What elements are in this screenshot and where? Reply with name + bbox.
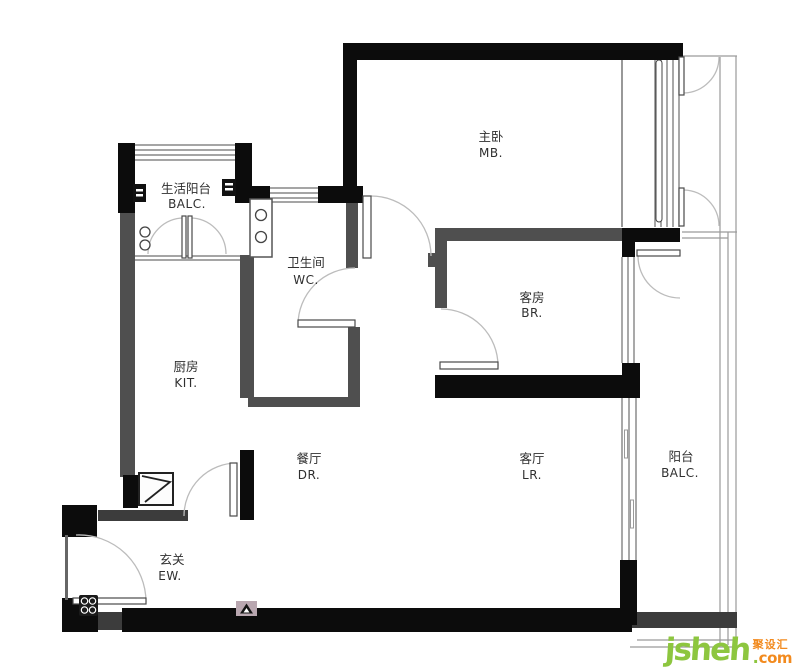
room-label-dining-cn: 餐厅 — [296, 451, 321, 466]
watermark-com: com — [759, 651, 792, 666]
fridge-icon — [139, 473, 173, 505]
room-label-entry-en: EW. — [158, 569, 181, 583]
window-layer — [135, 57, 679, 560]
room-label-kitchen-en: KIT. — [174, 376, 197, 390]
floor-plan: 生活阳台 BALC. 主卧 MB. 卫生间 WC. 客房 BR. 厨房 KIT.… — [0, 0, 800, 667]
room-label-living-cn: 客厅 — [519, 451, 544, 466]
black-wall-layer — [62, 43, 683, 632]
room-label-guest-bedroom-en: BR. — [521, 306, 542, 320]
balcony-taps-icon — [140, 227, 150, 250]
window-pane — [656, 60, 662, 222]
mb-door-leaf — [363, 196, 371, 258]
kitchen-door-leaf — [230, 463, 237, 516]
room-label-bathroom-en: WC. — [293, 273, 319, 287]
door-closer-icon — [79, 595, 98, 616]
room-label-bathroom-cn: 卫生间 — [287, 255, 325, 270]
casement-leaf-top — [679, 57, 684, 95]
room-label-living-en: LR. — [522, 468, 542, 482]
room-label-master-bedroom-en: MB. — [479, 146, 503, 160]
room-label-dining-en: DR. — [298, 468, 320, 482]
room-label-guest-bedroom-cn: 客房 — [519, 290, 544, 305]
balcony-outer-boundary — [630, 56, 737, 648]
balcony-door-leaf-left — [182, 216, 186, 258]
room-label-master-bedroom-cn: 主卧 — [478, 129, 503, 144]
room-label-entry-cn: 玄关 — [159, 552, 184, 567]
watermark-suffix-block: 聚设汇 . com — [753, 639, 792, 666]
room-label-balcony-cn: 阳台 — [668, 449, 693, 464]
wc-basin-icon — [250, 199, 272, 257]
watermark-logo: jsheh 聚设汇 . com — [665, 635, 792, 666]
room-label-balcony-en: BALC. — [661, 466, 699, 480]
br-door-leaf — [440, 362, 498, 369]
watermark-brand: jsheh — [664, 635, 750, 666]
room-label-service-balcony-en: BALC. — [168, 197, 206, 211]
balcony-top-door-leaf — [637, 250, 680, 256]
floor-plan-svg: 生活阳台 BALC. 主卧 MB. 卫生间 WC. 客房 BR. 厨房 KIT.… — [0, 0, 800, 667]
balcony-door-leaf-right — [188, 216, 192, 258]
wc-door-leaf — [298, 320, 355, 327]
room-label-kitchen-cn: 厨房 — [173, 359, 198, 374]
room-label-service-balcony-cn: 生活阳台 — [161, 181, 211, 196]
casement-leaf-bottom — [679, 188, 684, 226]
entry-arrow-icon — [236, 601, 257, 616]
